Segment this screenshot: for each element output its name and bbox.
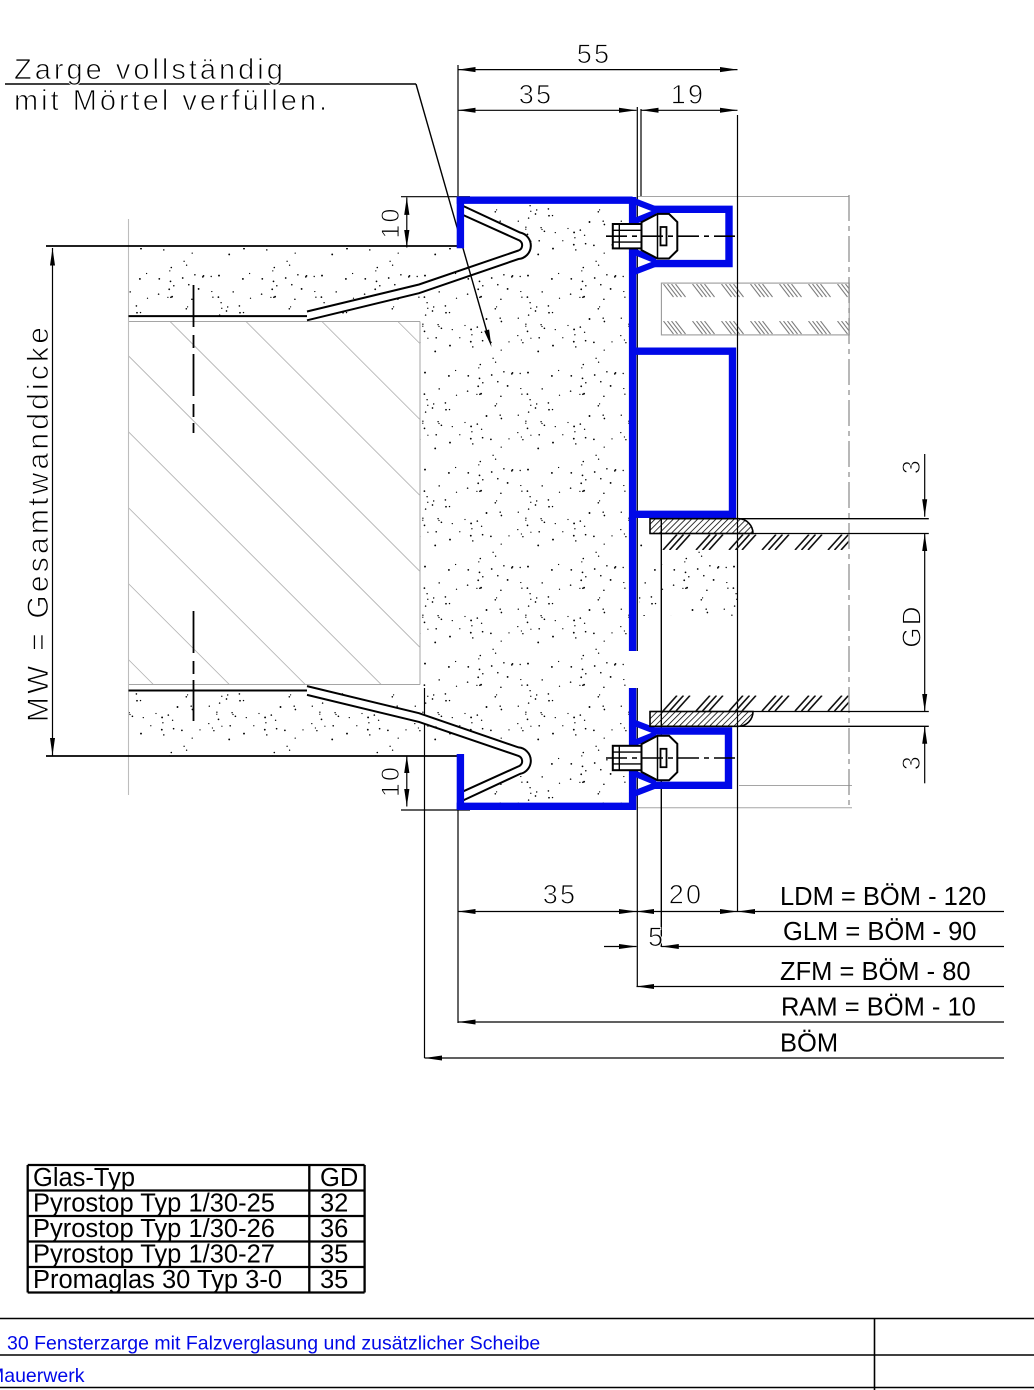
svg-text:19: 19 — [671, 80, 705, 110]
svg-text:Zarge vollständig: Zarge vollständig — [14, 54, 286, 86]
svg-text:10: 10 — [377, 206, 405, 238]
svg-text:3: 3 — [898, 458, 926, 474]
svg-text:Promaglas 30 Typ 3-0: Promaglas 30 Typ 3-0 — [33, 1266, 282, 1294]
svg-text:Glas-Typ: Glas-Typ — [33, 1164, 135, 1192]
svg-text:35: 35 — [320, 1266, 348, 1294]
svg-text:55: 55 — [577, 39, 611, 69]
svg-text:mit Mörtel verfüllen.: mit Mörtel verfüllen. — [14, 85, 330, 117]
svg-text:BÖM: BÖM — [780, 1030, 838, 1058]
svg-text:Pyrostop Typ 1/30-26: Pyrostop Typ 1/30-26 — [33, 1215, 275, 1243]
svg-text:20: 20 — [669, 880, 703, 910]
svg-text:30 Fensterzarge mit Falzvergla: 30 Fensterzarge mit Falzverglasung und z… — [7, 1333, 540, 1355]
svg-text:32: 32 — [320, 1190, 348, 1218]
svg-text:GD: GD — [320, 1164, 358, 1192]
svg-text:3: 3 — [898, 754, 926, 770]
svg-text:35: 35 — [320, 1241, 348, 1269]
svg-text:GLM = BÖM - 90: GLM = BÖM - 90 — [783, 918, 976, 946]
svg-text:36: 36 — [320, 1215, 348, 1243]
svg-text:Mauerwerk: Mauerwerk — [0, 1365, 85, 1387]
svg-text:Pyrostop Typ 1/30-27: Pyrostop Typ 1/30-27 — [33, 1241, 275, 1269]
svg-text:RAM = BÖM - 10: RAM = BÖM - 10 — [781, 994, 976, 1022]
svg-text:LDM = BÖM - 120: LDM = BÖM - 120 — [780, 883, 986, 911]
svg-text:35: 35 — [519, 80, 553, 110]
svg-text:10: 10 — [377, 765, 405, 797]
svg-text:5: 5 — [648, 922, 665, 952]
svg-text:GD: GD — [897, 604, 927, 647]
svg-text:Pyrostop Typ 1/30-25: Pyrostop Typ 1/30-25 — [33, 1190, 275, 1218]
svg-text:ZFM = BÖM - 80: ZFM = BÖM - 80 — [780, 958, 971, 986]
svg-text:35: 35 — [543, 880, 577, 910]
svg-text:MW = Gesamtwanddicke: MW = Gesamtwanddicke — [22, 324, 55, 722]
